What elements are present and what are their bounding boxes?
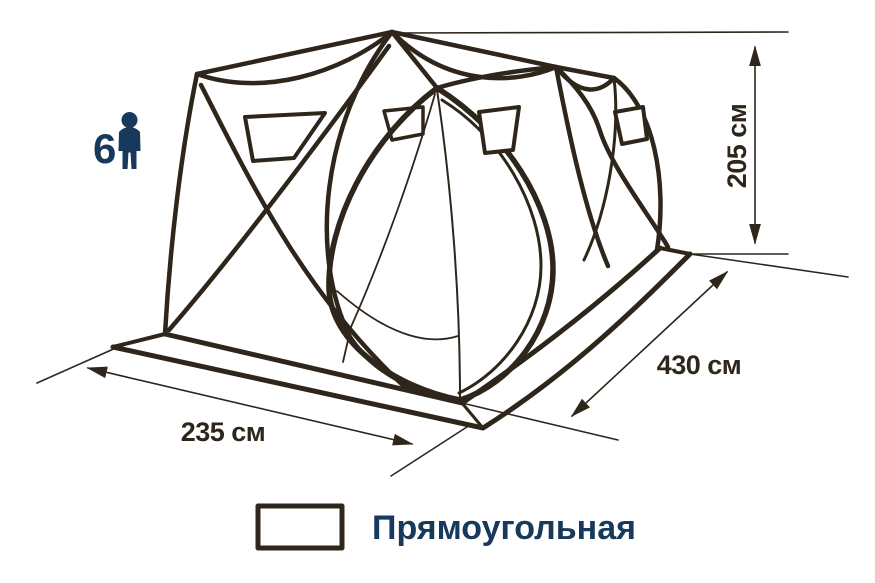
diagram-canvas: 235 см 430 см 205 см 6 Прямоугольная xyxy=(0,0,875,583)
left-wall-window xyxy=(245,113,325,161)
module2-right-window xyxy=(615,107,647,144)
door-opening-left xyxy=(329,88,460,400)
capacity-indicator: 6 xyxy=(93,112,141,172)
legend-shape-label: Прямоугольная xyxy=(372,509,636,547)
width-extension-right xyxy=(391,425,470,476)
door-center-pole xyxy=(437,90,460,398)
length-dimension: 430 см xyxy=(462,254,848,440)
length-label: 430 см xyxy=(657,350,742,380)
height-label: 205 см xyxy=(722,104,752,189)
legend: Прямоугольная xyxy=(258,506,636,548)
tent-drawing xyxy=(113,32,690,428)
skirt-corner-right xyxy=(660,248,690,254)
tent-base-edge xyxy=(165,248,660,403)
width-label: 235 см xyxy=(181,417,266,447)
capacity-count: 6 xyxy=(93,125,116,172)
module2-left-window xyxy=(479,107,519,153)
height-tick-top xyxy=(397,32,788,33)
door-inner-window xyxy=(384,107,423,140)
width-extension-left xyxy=(37,343,127,383)
left-wall-edge xyxy=(165,74,197,334)
length-extension-top xyxy=(690,254,848,277)
tent-roof xyxy=(197,32,614,89)
length-extension-bottom xyxy=(462,403,618,440)
tent-left-wall xyxy=(165,46,408,390)
rectangle-shape-icon xyxy=(258,506,342,548)
person-icon xyxy=(119,112,141,169)
tent-dimension-diagram: 235 см 430 см 205 см 6 Прямоугольная xyxy=(0,0,875,583)
tent-skirt xyxy=(113,248,690,428)
